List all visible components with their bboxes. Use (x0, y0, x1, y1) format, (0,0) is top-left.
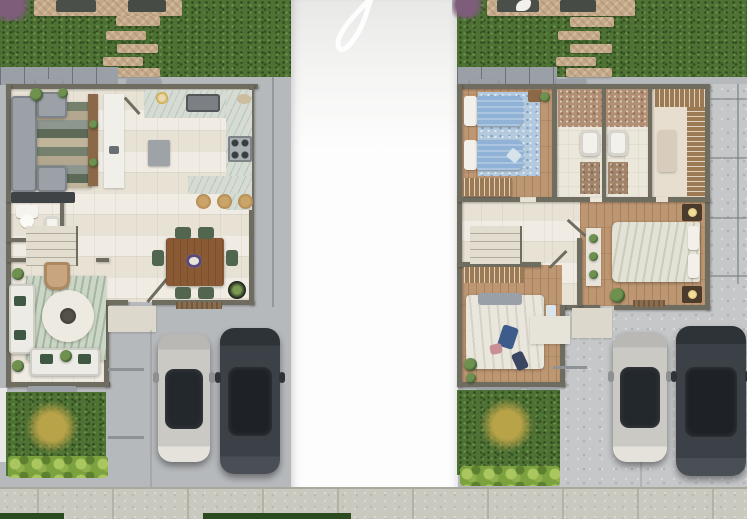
entry-porch (108, 306, 156, 332)
doormat (176, 302, 222, 309)
twin-bed (477, 96, 523, 126)
white-divider-panel (291, 0, 458, 488)
door-opening (520, 197, 536, 202)
sofa-cushion (40, 354, 53, 364)
sectional-sofa-chaise (37, 166, 67, 192)
car-roof-glass (685, 367, 737, 438)
stepping-stone (566, 68, 612, 77)
table-centerpiece (186, 254, 202, 268)
deck-furniture (128, 0, 166, 12)
staircase (26, 226, 78, 266)
potted-plant (589, 234, 598, 243)
dining-chair (198, 287, 214, 299)
sectional-sofa (11, 96, 37, 192)
bathroom-vanity (580, 130, 600, 156)
side-mirror (608, 371, 614, 382)
expansion-joint (710, 275, 747, 277)
dining-chair (175, 287, 191, 299)
car-silver-left (158, 334, 210, 462)
bed-pillow (464, 140, 477, 170)
car-roof-glass (228, 367, 272, 436)
counter-item (109, 146, 119, 154)
shower-stall (606, 89, 648, 127)
dining-chair (198, 227, 214, 239)
expansion-joint (710, 98, 747, 100)
expansion-joint (150, 330, 152, 487)
bath-cabinet (608, 162, 628, 194)
stepping-stone (103, 57, 143, 66)
dining-chair (175, 227, 191, 239)
sidewalk-joint (412, 489, 414, 519)
cooktop (228, 136, 252, 162)
bath-cabinet (580, 162, 600, 194)
potted-plant (589, 252, 598, 261)
side-mirror (671, 371, 677, 382)
expansion-joint (710, 157, 747, 159)
master-bed (612, 222, 700, 282)
parking-line (108, 436, 144, 439)
closet-wardrobe (464, 267, 524, 283)
table-lamp (688, 290, 697, 299)
car-roof-glass (620, 367, 660, 428)
door-opening (590, 197, 602, 202)
yellow-flower-shrub (478, 398, 536, 452)
closet-wardrobe (464, 178, 512, 196)
potted-plant (540, 92, 550, 102)
potted-plant (610, 288, 625, 303)
interior-wall (552, 88, 557, 200)
bar-stool (196, 194, 211, 209)
dining-chair (226, 250, 238, 266)
side-mirror (153, 372, 159, 383)
exterior-wall (6, 84, 258, 89)
kitchen-sink (186, 94, 220, 112)
potted-plant (464, 358, 477, 371)
entry-porch (572, 308, 612, 338)
stepping-stone (117, 44, 158, 53)
walkin-wardrobe (654, 89, 705, 107)
stepping-stone (114, 68, 160, 77)
interior-wall (96, 258, 109, 262)
car-dark-right (676, 326, 746, 476)
door-opening (656, 197, 668, 202)
potted-plant (89, 158, 98, 167)
deck-furniture (56, 0, 96, 12)
sidewalk-joint (712, 489, 714, 519)
potted-plant (60, 350, 72, 362)
stepping-stone (558, 31, 600, 40)
bed-pillow (478, 293, 522, 305)
hedge-left (8, 456, 108, 478)
stepping-stone (116, 16, 160, 26)
bar-stool (217, 194, 232, 209)
doormat (633, 300, 665, 307)
planter-pot (228, 281, 246, 299)
cookware-pot (156, 92, 168, 104)
serving-bowl (237, 94, 251, 104)
potted-plant (466, 373, 476, 383)
parking-line (553, 366, 587, 369)
expansion-joint (272, 77, 274, 307)
hedge-right (460, 466, 560, 486)
car-dark-left (220, 328, 280, 474)
potted-plant (89, 120, 98, 129)
expansion-joint (737, 84, 739, 284)
watermark-script-glyph (303, 0, 393, 60)
bed-pillow (688, 254, 699, 278)
floorplan-render (0, 0, 747, 519)
stepping-stone (570, 17, 614, 27)
staircase (470, 226, 522, 264)
deck-furniture (560, 0, 596, 12)
dining-chair (152, 250, 164, 266)
table-lamp (688, 208, 697, 217)
side-mirror (279, 372, 285, 383)
sidewalk-joint (637, 489, 639, 519)
side-mirror (215, 372, 221, 383)
interior-wall (577, 238, 582, 306)
breakfast-bar (188, 176, 252, 194)
sidewalk-joint (487, 489, 489, 519)
sidewalk-joint (187, 489, 189, 519)
stepping-stone (106, 31, 146, 40)
walkin-wardrobe (687, 107, 705, 197)
potted-plant (589, 270, 598, 279)
stepping-stone (570, 44, 612, 53)
interior-wall (648, 88, 652, 200)
street-lawn-patch (203, 513, 351, 519)
media-console (11, 192, 75, 203)
entry-porch (530, 316, 570, 344)
car-silver-right (613, 332, 667, 462)
coffee-table (60, 308, 76, 324)
closet-bench (658, 130, 676, 172)
parking-line (108, 368, 144, 371)
bed-pillow (688, 226, 699, 250)
street-lawn-patch (0, 513, 64, 519)
potted-plant (58, 88, 68, 98)
bed-pillow (464, 96, 477, 126)
potted-plant (30, 88, 43, 101)
expansion-joint (710, 217, 747, 219)
potted-plant (12, 360, 24, 372)
hall-counter (104, 94, 124, 188)
stepping-stone (556, 57, 596, 66)
sofa-white (9, 284, 35, 354)
sofa-cushion (78, 354, 91, 364)
shower-stall (558, 89, 602, 127)
bar-stool (238, 194, 253, 209)
yellow-flower-shrub (24, 400, 80, 454)
sidewalk-joint (112, 489, 114, 519)
purple-shrub (0, 0, 36, 21)
sofa-cushion (14, 296, 26, 306)
refrigerator (148, 140, 170, 166)
sofa-cushion (14, 330, 26, 340)
exterior-wall (104, 300, 128, 305)
bathroom-vanity (608, 130, 628, 156)
sidewalk-joint (562, 489, 564, 519)
console-shelf (88, 94, 98, 186)
potted-plant (12, 268, 24, 280)
car-roof-glass (165, 369, 203, 429)
armchair (44, 262, 70, 290)
purple-shrub (452, 0, 488, 19)
interior-wall (457, 197, 710, 202)
exterior-wall (457, 84, 462, 387)
